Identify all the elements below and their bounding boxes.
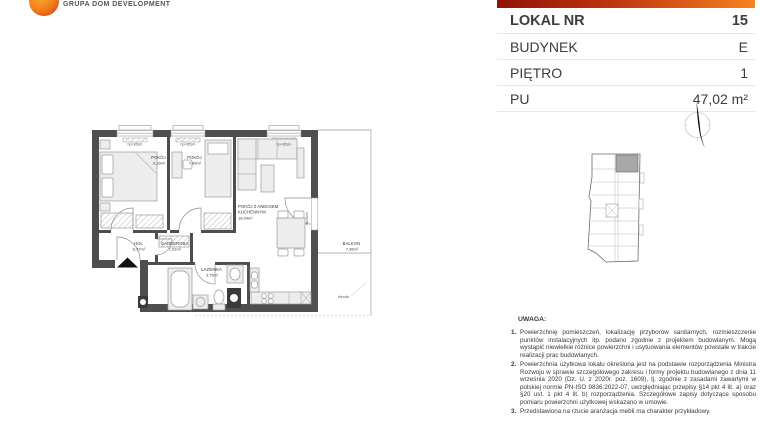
balcony-door-sill-label: hp=0cm — [305, 212, 309, 225]
room-label-living-kitchen: POKÓJ Z ANEKSEM KUCHENNYM 18,34m² — [238, 204, 280, 221]
accent-gradient-bar — [497, 0, 755, 8]
info-row-lokal: LOKAL NR 15 — [497, 8, 755, 34]
window-sill-label-3: hp=85cm — [277, 143, 292, 147]
pu-label: PU — [510, 91, 529, 107]
note-text: Przedstawiona na rzucie aranżacja mebli … — [520, 408, 756, 416]
note-text: Powierzchnię pomieszczeń, lokalizację pr… — [520, 329, 756, 359]
note-item: 1. Powierzchnię pomieszczeń, lokalizację… — [509, 329, 756, 359]
note-item: 3. Przedstawiona na rzucie aranżacja meb… — [509, 408, 756, 416]
info-row-budynek: BUDYNEK E — [497, 34, 755, 60]
info-row-pietro: PIĘTRO 1 — [497, 60, 755, 86]
room-label-bathroom: ŁAZIENKA 3,75m² — [201, 267, 223, 278]
room-label-bedroom-2: POKÓJ 7,89m² — [187, 155, 203, 166]
window-sill-label-2: hp=85cm — [181, 143, 196, 147]
info-row-pu: PU 47,02 m² — [497, 86, 755, 112]
budynek-label: BUDYNEK — [510, 39, 578, 55]
brand-name: GRUPA DOM DEVELOPMENT — [63, 1, 170, 8]
note-item: 2. Powierzchnia użytkowa lokalu określon… — [509, 361, 756, 406]
note-number: 1. — [511, 329, 518, 359]
note-number: 2. — [511, 361, 518, 406]
selected-unit-highlight — [616, 155, 638, 172]
notes-section: UWAGA: 1. Powierzchnię pomieszczeń, loka… — [509, 316, 756, 418]
note-text: Powierzchnia użytkowa lokalu określona j… — [520, 361, 756, 406]
floorplan-sheet: GRUPA DOM DEVELOPMENT — [0, 0, 760, 428]
building-site-plan — [584, 149, 648, 265]
note-number: 3. — [511, 408, 518, 416]
room-label-bedroom-1: POKÓJ 9,16m² — [151, 155, 167, 166]
unit-info-panel: LOKAL NR 15 BUDYNEK E PIĘTRO 1 PU 47,02 … — [497, 0, 755, 112]
north-arrow-icon — [682, 100, 716, 150]
notes-heading: UWAGA: — [518, 316, 756, 323]
lokal-label: LOKAL NR — [510, 13, 585, 29]
furniture — [100, 139, 311, 310]
budynek-value: E — [739, 39, 748, 55]
blenda-label: blenda — [338, 295, 349, 299]
room-label-balcony: BALKON 7,36m² — [343, 241, 362, 252]
pietro-label: PIĘTRO — [510, 65, 562, 81]
entrance-marker — [117, 258, 138, 268]
building-balconies — [639, 173, 644, 235]
lokal-value: 15 — [732, 13, 748, 29]
pietro-value: 1 — [740, 65, 748, 81]
window-sill-label-1: hp=85cm — [128, 143, 143, 147]
dom-development-logo-icon — [29, 0, 59, 16]
room-label-hall: HOL 6,37m² — [133, 241, 146, 252]
floor-plan-drawing: POKÓJ 9,16m² POKÓJ 7,89m² POKÓJ Z ANEKSE… — [75, 118, 375, 320]
